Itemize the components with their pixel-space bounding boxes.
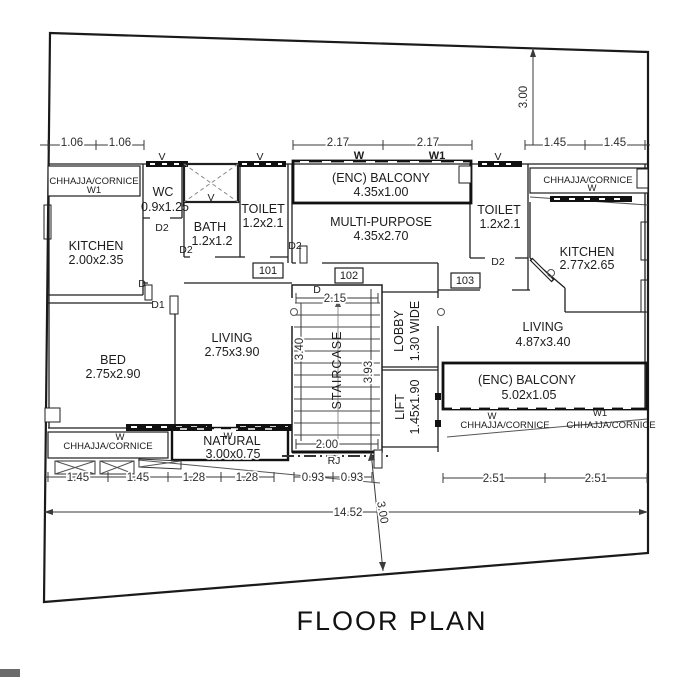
room-bed-name: BED (100, 353, 126, 367)
cornice-top-right-window: W (588, 183, 597, 194)
room-lobby-size: 1.30 WIDE (408, 301, 422, 361)
dim-bot-right-2: 2.51 (585, 473, 607, 485)
dim-top-left-2: 1.06 (109, 137, 131, 149)
window-v1-label: V (158, 151, 165, 163)
room-bed-size: 2.75x2.90 (86, 367, 141, 381)
door-d2-toilet-right-label: D2 (491, 256, 505, 268)
dim-bot-right-1: 2.51 (483, 473, 505, 485)
room-toilet-right-name: TOILET (477, 203, 521, 217)
room-multipurpose-name: MULTI-PURPOSE (330, 215, 432, 229)
drawing-title: FLOOR PLAN (296, 606, 487, 636)
unit-102: 102 (340, 270, 358, 282)
door-d2-bath-label: D2 (179, 244, 193, 256)
room-toilet-left-name: TOILET (241, 202, 285, 216)
screen-artifact (0, 669, 20, 677)
dim-top-right-1: 1.45 (544, 137, 566, 149)
room-living-left-size: 2.75x3.90 (205, 345, 260, 359)
room-living-right-name: LIVING (523, 320, 564, 334)
rj-label: RJ (328, 455, 341, 467)
room-living-left-name: LIVING (212, 331, 253, 345)
room-balcony-top-size: 4.35x1.00 (354, 185, 409, 199)
cornice-top-left-window: W1 (87, 185, 101, 196)
door-d-label: D (138, 278, 146, 290)
room-toilet-right-size: 1.2x2.1 (479, 217, 520, 231)
door-d1-label: D1 (151, 299, 165, 311)
room-toilet-left-size: 1.2x2.1 (242, 216, 283, 230)
dim-bot-left-3: 1.28 (183, 472, 205, 484)
door-d2-multi-label: D2 (288, 240, 302, 252)
room-multipurpose-size: 4.35x2.70 (354, 229, 409, 243)
dim-bot-left-2: 1.45 (127, 472, 149, 484)
room-wc-name: WC (153, 185, 174, 199)
dim-bot-left-1: 1.45 (67, 472, 89, 484)
floor-plan-drawing: CHHAJJA/CORNICE W1 CHHAJJA/CORNICE W W C… (0, 0, 700, 677)
room-bath-size: 1.2x1.2 (191, 234, 232, 248)
room-bath-name: BATH (194, 220, 226, 234)
room-kitchen-left-size: 2.00x2.35 (69, 253, 124, 267)
dim-bot-left-5: 0.93 (302, 472, 324, 484)
door-d-stair-label: D (313, 284, 321, 296)
unit-101: 101 (259, 265, 277, 277)
room-balcony-right-name: (ENC) BALCONY (478, 373, 577, 387)
dim-total-width: 14.52 (334, 507, 363, 519)
room-balcony-top-name: (ENC) BALCONY (332, 171, 431, 185)
room-lift-size: 1.45x1.90 (408, 380, 422, 435)
cornice-bottom-right2-label: CHHAJJA/CORNICE (566, 420, 655, 431)
room-kitchen-right-name: KITCHEN (560, 245, 615, 259)
dimension-lines (40, 48, 650, 571)
duct-vent-label: V (207, 192, 214, 204)
window-w1-label: W1 (429, 150, 446, 162)
dim-bot-left-6: 0.93 (341, 472, 363, 484)
room-living-right-size: 4.87x3.40 (516, 335, 571, 349)
unit-103: 103 (456, 275, 474, 287)
dim-bot-left-4: 1.28 (236, 472, 258, 484)
dim-stair-width: 2.15 (324, 293, 346, 305)
room-natural-size: 3.00x0.75 (206, 447, 261, 461)
room-lobby-name: LOBBY (392, 309, 406, 351)
room-wc-size: 0.9x1.25 (141, 200, 189, 214)
natural-window: W (224, 431, 233, 442)
window-v3-label: V (494, 151, 501, 163)
floor-plan-svg: CHHAJJA/CORNICE W1 CHHAJJA/CORNICE W W C… (0, 0, 700, 677)
dim-vertical-top-right: 3.00 (518, 86, 530, 108)
dim-stair-h1: 3.40 (294, 338, 306, 360)
cornice-bottom-left-label: CHHAJJA/CORNICE (63, 441, 152, 452)
dim-stair-h2: 3.93 (363, 361, 375, 383)
room-kitchen-right-size: 2.77x2.65 (560, 258, 615, 272)
dim-top-right-2: 1.45 (604, 137, 626, 149)
door-d2-wc-label: D2 (155, 222, 169, 234)
dim-vertical-bottom: 3.00 (374, 500, 390, 524)
cornice-boxes (45, 166, 648, 458)
room-lift-name: LIFT (393, 394, 407, 420)
dim-top-left-1: 1.06 (61, 137, 83, 149)
door-leaf-d (145, 285, 152, 300)
room-balcony-right-size: 5.02x1.05 (502, 388, 557, 402)
dim-top-mid-1: 2.17 (327, 137, 349, 149)
room-kitchen-left-name: KITCHEN (69, 239, 124, 253)
window-v2-label: V (256, 151, 263, 163)
door-leaf-entry (374, 450, 382, 468)
cornice-bottom-right2-window: W1 (593, 408, 607, 419)
dim-stair-bottom: 2.00 (316, 439, 338, 451)
cornice-bottom-right1-label: CHHAJJA/CORNICE (460, 420, 549, 431)
window-w-label: W (354, 150, 365, 162)
door-leaf-d1 (170, 296, 178, 314)
room-staircase-name: STAIRCASE (330, 331, 344, 410)
dim-top-mid-2: 2.17 (417, 137, 439, 149)
